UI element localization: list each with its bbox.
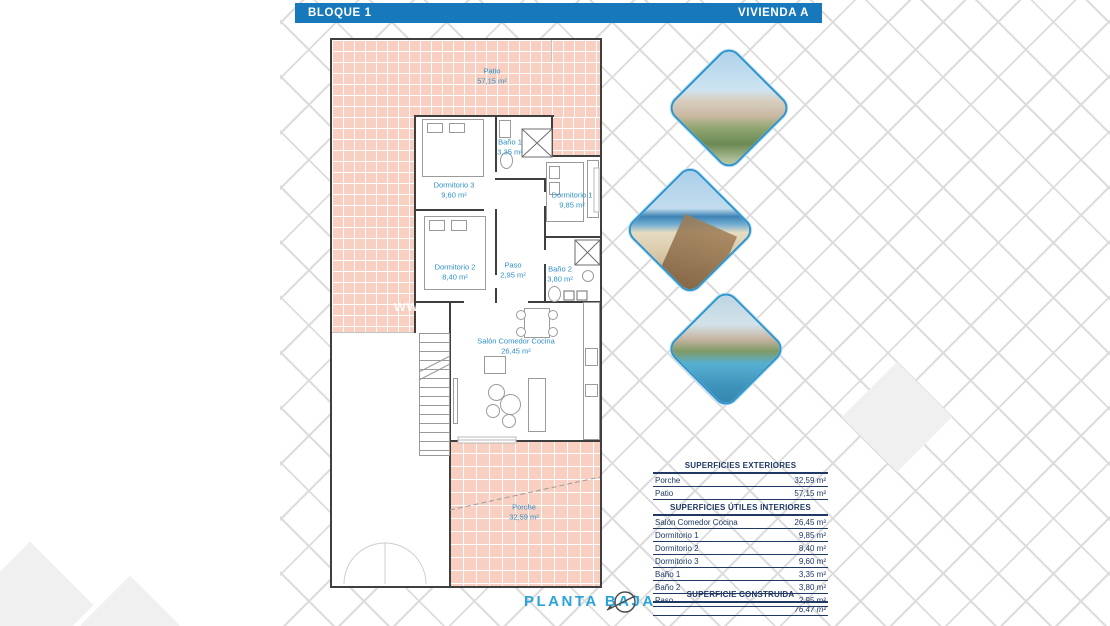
wall-segment <box>414 209 484 211</box>
table-superficie-construida: SUPERFICIE CONSTRUIDA 76,47 m² <box>653 590 828 616</box>
sofa <box>528 378 546 432</box>
lattice-shade <box>81 576 180 626</box>
table-row: Baño 1 3,35 m² <box>653 568 828 581</box>
table-row: Porche 32,59 m² <box>653 474 828 487</box>
plant <box>500 394 521 415</box>
table-row: Salón Comedor Cocina 26,45 m² <box>653 516 828 529</box>
room-label-patio: Patio57,15 m² <box>477 66 507 86</box>
table-row: Dormitorio 3 9,60 m² <box>653 555 828 568</box>
table-row: Dormitorio 1 9,85 m² <box>653 529 828 542</box>
plant <box>502 414 516 428</box>
patio-zone <box>332 40 600 117</box>
room-label-salon: Salón Comedor Cocina26,45 m² <box>477 336 555 356</box>
title-bar: BLOQUE 1 VIVIENDA A <box>295 3 822 23</box>
wall-segment <box>495 288 497 303</box>
hob <box>585 348 598 366</box>
lattice-shade <box>0 541 94 626</box>
pillow <box>429 220 445 231</box>
room-label-dormitorio3: Dormitorio 39,60 m² <box>434 180 475 200</box>
room-label-dormitorio2: Dormitorio 28,40 m² <box>435 262 476 282</box>
wall-segment <box>544 236 600 238</box>
chair <box>516 310 526 320</box>
table-title: SUPERFICIES ÚTILES INTERIORES <box>653 503 828 516</box>
chair <box>548 310 558 320</box>
sink-bano1 <box>499 120 511 138</box>
staircase <box>419 333 450 456</box>
compass-icon <box>603 588 643 616</box>
page: { "header": { "left": "BLOQUE 1", "right… <box>0 0 1110 626</box>
dining-table <box>524 308 550 338</box>
wall-segment <box>449 440 600 442</box>
table-row: Dormitorio 2 8,40 m² <box>653 542 828 555</box>
table-title: SUPERFICIES EXTERIORES <box>653 461 828 474</box>
room-label-dormitorio1: Dormitorio 19,85 m² <box>552 190 593 210</box>
watermark: www <box>394 298 432 315</box>
wall-segment <box>551 115 553 157</box>
wall-segment <box>414 115 554 117</box>
pillow <box>451 220 467 231</box>
wall-segment <box>544 264 546 303</box>
block-title: BLOQUE 1 <box>308 7 372 19</box>
pillow <box>549 166 560 179</box>
wall-segment <box>551 155 600 157</box>
kitchen-counter <box>583 302 600 440</box>
table-title: SUPERFICIE CONSTRUIDA <box>653 590 828 603</box>
room-label-paso: Paso2,95 m² <box>500 260 525 280</box>
tv-unit <box>453 378 458 424</box>
room-label-porche: Porche32,59 m² <box>509 502 539 522</box>
plot-divider-line <box>332 332 414 333</box>
table-row: Patio 57,15 m² <box>653 487 828 500</box>
table-superficies-exteriores: SUPERFICIES EXTERIORES Porche 32,59 m² P… <box>653 461 828 500</box>
pillow <box>449 123 465 133</box>
dwelling-title: VIVIENDA A <box>738 7 809 19</box>
patio-zone-right <box>551 117 600 156</box>
sink-bano2 <box>582 270 594 282</box>
patio-notch-line <box>551 40 552 62</box>
table-row: 76,47 m² <box>653 603 828 616</box>
floor-plan: Patio57,15 m² Dormitorio 39,60 m² Baño 1… <box>330 38 602 588</box>
plant <box>486 404 500 418</box>
room-label-bano1: Baño 13,35 m² <box>497 137 522 157</box>
kitchen-sink <box>585 384 598 397</box>
pillow <box>427 123 443 133</box>
armchair <box>484 356 506 374</box>
wall-segment <box>495 209 497 275</box>
toilet-bano2 <box>548 286 561 302</box>
room-label-bano2: Baño 23,80 m² <box>547 264 572 284</box>
